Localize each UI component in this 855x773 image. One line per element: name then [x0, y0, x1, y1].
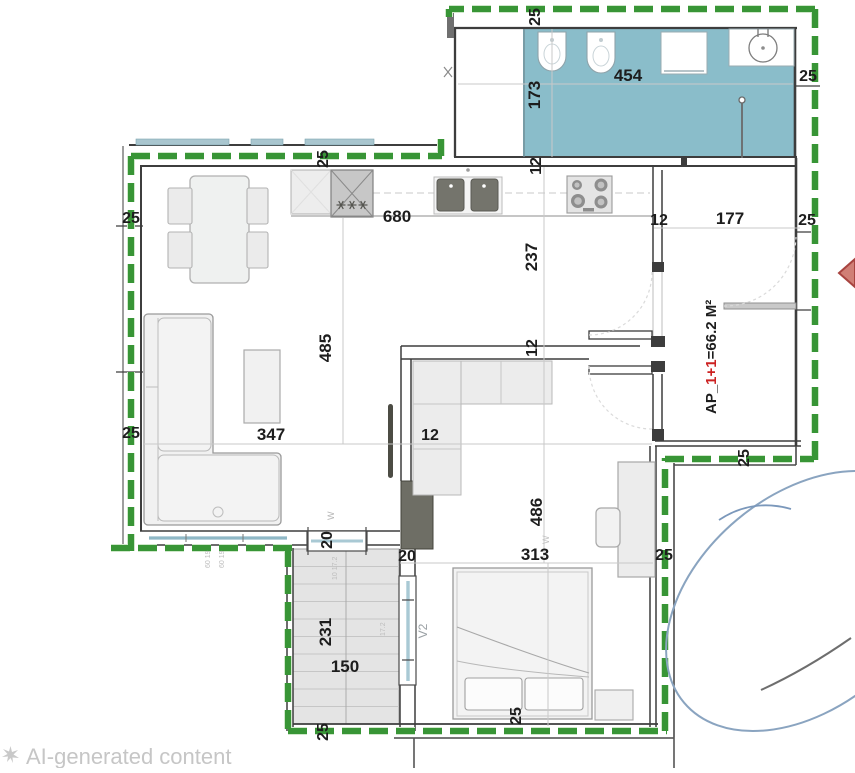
svg-text:231: 231 — [316, 618, 335, 646]
svg-text:177: 177 — [716, 209, 744, 228]
svg-text:AP_1+1=66.2 M²: AP_1+1=66.2 M² — [703, 300, 720, 414]
svg-text:454: 454 — [614, 66, 643, 85]
svg-text:25: 25 — [655, 547, 673, 564]
svg-text:680: 680 — [383, 207, 411, 226]
svg-text:20: 20 — [398, 548, 416, 565]
svg-text:25: 25 — [527, 8, 544, 26]
svg-text:150: 150 — [331, 657, 359, 676]
svg-text:12: 12 — [650, 212, 668, 229]
svg-text:237: 237 — [522, 243, 541, 271]
svg-text:25: 25 — [315, 150, 332, 168]
svg-text:485: 485 — [316, 334, 335, 362]
svg-text:25: 25 — [736, 449, 753, 467]
svg-text:10 17.2: 10 17.2 — [332, 557, 339, 580]
svg-text:W: W — [326, 511, 336, 520]
svg-text:60 19: 60 19 — [205, 550, 212, 568]
svg-text:25: 25 — [798, 212, 816, 229]
svg-text:25: 25 — [799, 68, 817, 85]
svg-text:17.2: 17.2 — [380, 622, 387, 636]
svg-text:AI-generated content: AI-generated content — [26, 744, 231, 768]
svg-text:25: 25 — [508, 707, 525, 725]
svg-text:12: 12 — [421, 427, 439, 444]
svg-text:12: 12 — [524, 339, 541, 357]
svg-text:V2: V2 — [416, 623, 430, 638]
svg-text:173: 173 — [525, 81, 544, 109]
svg-text:486: 486 — [527, 498, 546, 526]
svg-text:25: 25 — [122, 210, 140, 227]
svg-text:313: 313 — [521, 545, 549, 564]
svg-text:W: W — [541, 535, 551, 544]
svg-text:347: 347 — [257, 425, 285, 444]
svg-text:25: 25 — [122, 425, 140, 442]
svg-text:60 19: 60 19 — [219, 550, 226, 568]
svg-text:25: 25 — [315, 723, 332, 741]
svg-text:12: 12 — [528, 157, 545, 175]
svg-text:20: 20 — [319, 531, 336, 549]
